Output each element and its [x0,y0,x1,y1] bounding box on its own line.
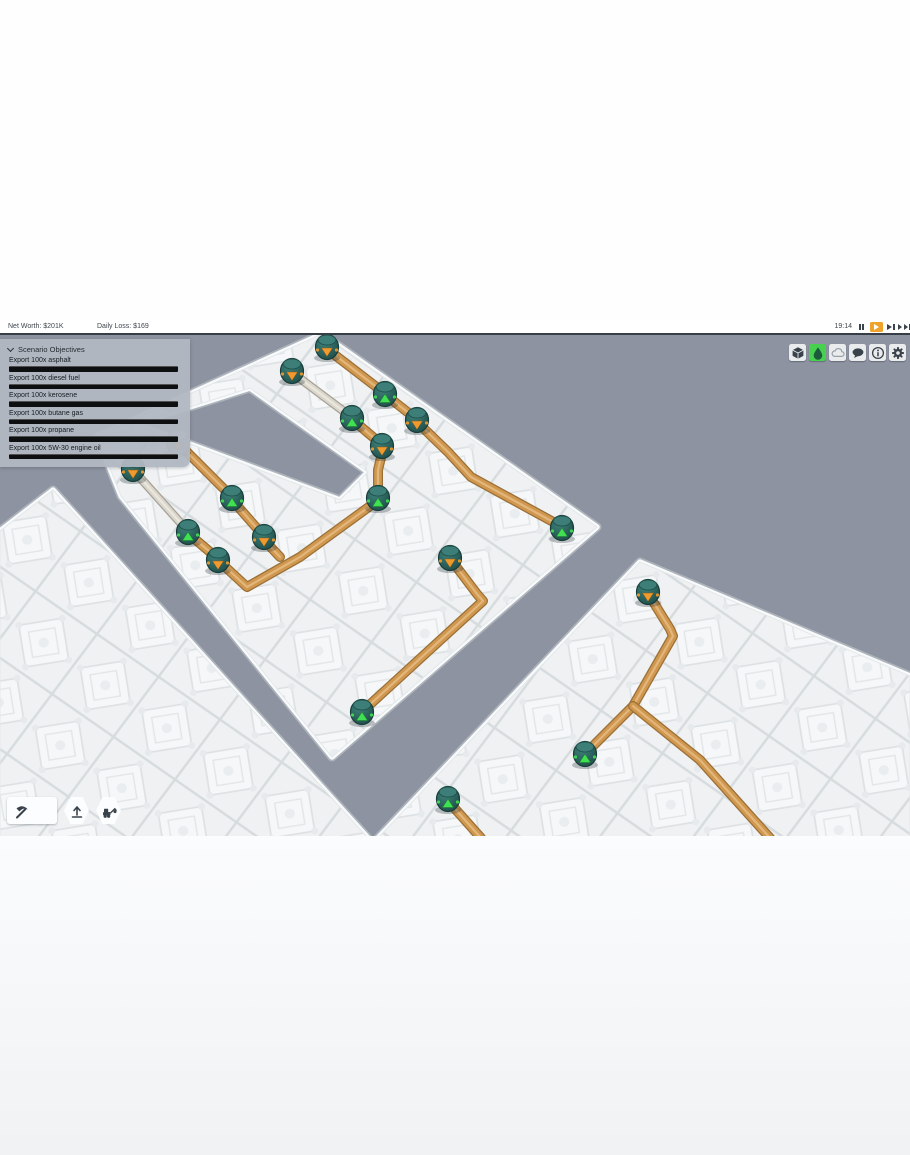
build-tool-button[interactable] [7,797,57,824]
objective-item: Export 100x 5W-30 engine oil [9,445,182,460]
objective-label: Export 100x asphalt [9,357,182,364]
pause-icon [859,324,861,330]
objective-item: Export 100x diesel fuel [9,375,182,390]
pump-station[interactable] [205,548,231,576]
pump-station[interactable] [349,700,375,728]
top-hud-bar: Net Worth: $201K Daily Loss: $169 19:14 [0,320,910,334]
play-icon [874,324,879,330]
objective-progress-bar [9,419,178,425]
pump-station[interactable] [365,486,391,514]
objectives-title: Scenario Objectives [18,345,85,354]
fast-forward-button[interactable] [885,322,897,332]
objective-label: Export 100x 5W-30 engine oil [9,445,182,452]
pump-station[interactable] [572,742,598,770]
cloud-icon [830,345,846,361]
pump-station[interactable] [175,520,201,548]
objective-item: Export 100x propane [9,427,182,442]
pump-station[interactable] [251,525,277,553]
objective-progress-bar [9,436,178,442]
pump-station[interactable] [219,486,245,514]
objective-progress-bar [9,366,178,372]
info-button[interactable] [869,344,886,361]
weather-button[interactable] [829,344,846,361]
pump-station[interactable] [404,408,430,436]
fluids-button[interactable] [809,344,826,361]
objective-label: Export 100x propane [9,427,182,434]
pump-station[interactable] [635,580,661,608]
objective-progress-bar [9,384,178,390]
objectives-header[interactable]: Scenario Objectives [8,345,182,354]
pump-station[interactable] [279,359,305,387]
daily-loss-value: Daily Loss: $169 [97,323,149,330]
pause-button[interactable] [857,322,866,332]
hud-separator [0,333,910,335]
play-button[interactable] [870,322,883,332]
pump-station[interactable] [314,335,340,362]
pump-station[interactable] [435,787,461,815]
info-icon [870,345,886,361]
pickaxe-icon [13,803,29,819]
export-arrow-icon [69,803,85,819]
page-bottom-margin [0,836,910,1155]
messages-button[interactable] [849,344,866,361]
objective-progress-bar [9,454,178,460]
overlay-toggle-buttons [789,344,906,361]
net-worth-value: Net Worth: $201K [8,323,64,330]
droplet-icon [810,345,826,361]
settings-button[interactable] [889,344,906,361]
objective-item: Export 100x asphalt [9,357,182,372]
excavator-icon [101,803,117,819]
pump-station[interactable] [339,406,365,434]
objective-label: Export 100x diesel fuel [9,375,182,382]
fastest-forward-icon [898,324,902,330]
chevron-down-icon [7,345,14,352]
speech-bubble-icon [850,345,866,361]
pump-station[interactable] [549,516,575,544]
objective-label: Export 100x kerosene [9,392,182,399]
build-toolbar [7,797,121,824]
demolish-tool-button[interactable] [96,797,121,824]
objective-label: Export 100x butane gas [9,410,182,417]
pump-station[interactable] [372,382,398,410]
resources-button[interactable] [789,344,806,361]
game-clock: 19:14 [834,323,852,330]
pump-station[interactable] [437,546,463,574]
objective-progress-bar [9,401,178,407]
scenario-objectives-panel: Scenario Objectives Export 100x asphalt … [0,339,190,467]
fastest-forward-button[interactable] [898,322,910,332]
fast-forward-icon [887,324,892,330]
export-tool-button[interactable] [64,797,89,824]
gear-icon [890,345,906,361]
objective-item: Export 100x kerosene [9,392,182,407]
objective-item: Export 100x butane gas [9,410,182,425]
cube-icon [790,345,806,361]
page-top-margin [0,0,910,320]
pump-station[interactable] [369,434,395,462]
